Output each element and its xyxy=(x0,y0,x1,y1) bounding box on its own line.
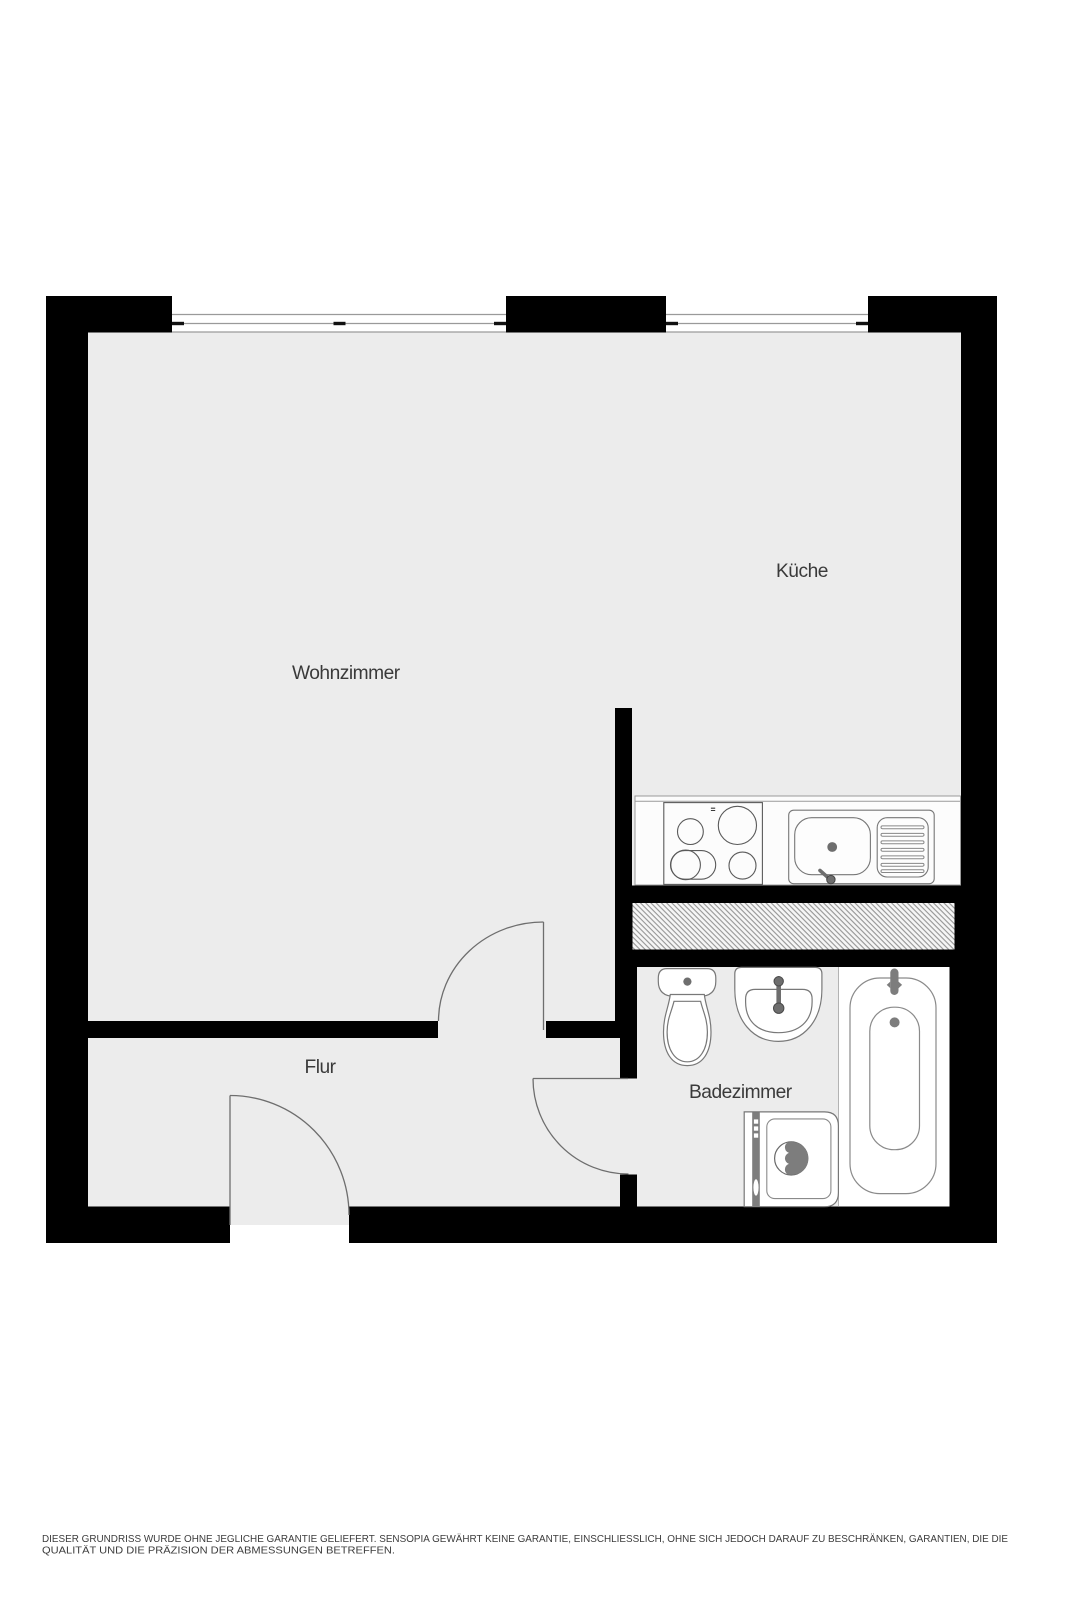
svg-text:DIESER GRUNDRISS WURDE OHNE JE: DIESER GRUNDRISS WURDE OHNE JEGLICHE GAR… xyxy=(42,1533,1008,1545)
svg-text:Wohnzimmer: Wohnzimmer xyxy=(292,663,401,684)
svg-text:Küche: Küche xyxy=(776,561,828,582)
svg-text:Badezimmer: Badezimmer xyxy=(689,1082,793,1103)
svg-text:QUALITÄT UND DIE PRÄZISION DER: QUALITÄT UND DIE PRÄZISION DER ABMESSUNG… xyxy=(42,1545,395,1557)
svg-text:Flur: Flur xyxy=(305,1057,337,1078)
